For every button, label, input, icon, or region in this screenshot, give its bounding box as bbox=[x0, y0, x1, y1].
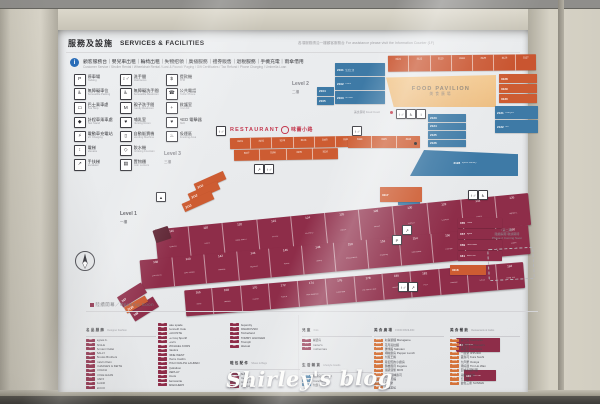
shop-number: GAP Outlet bbox=[172, 270, 206, 286]
shop-block: 2103NITORI bbox=[335, 91, 385, 104]
sign-title-en: SERVICES & FACILITIES bbox=[120, 40, 205, 47]
opening-soon-note: 陸續開幕／Opening Soon bbox=[90, 302, 154, 308]
shop-number: 3125 bbox=[472, 55, 493, 71]
legend-item: $提款機ATM bbox=[166, 74, 212, 84]
legend-label: 提款機ATM bbox=[180, 74, 193, 84]
level-1-label: Level 1一樓 bbox=[120, 202, 137, 225]
level-3-label: Level 3三樓 bbox=[164, 142, 181, 165]
bus-stop-icon: ▭ bbox=[74, 102, 86, 114]
legend-label: 置物櫃Coin Lockers bbox=[134, 159, 150, 169]
legend-label-en: Parking bbox=[88, 79, 101, 82]
legend-label-en: Bus Stop bbox=[88, 107, 109, 110]
shop-number: ASICS bbox=[269, 295, 298, 309]
directory-group-header: 兒童Kids bbox=[302, 318, 372, 338]
photo-of-mall-directory-sign: 服務及設施 SERVICES & FACILITIES 各項服務請洽一樓顧客服務… bbox=[0, 0, 600, 404]
shop-number: 3127 bbox=[515, 54, 536, 70]
restaurant-strip-label: RESTAURANT 味蕾小路 bbox=[230, 126, 313, 134]
legend-col-2: ♀♂洗手間Restrooms♿無障礙洗手間Accessible Restroom… bbox=[120, 74, 166, 173]
shop-number: LACOSTE bbox=[141, 273, 174, 289]
family-restroom-icon: M bbox=[120, 102, 132, 114]
food-pavilion-area: FOOD PAVILION 美食廣場 bbox=[386, 75, 496, 107]
shop-number: 3123 bbox=[429, 55, 450, 71]
shop-number: New Balance bbox=[298, 293, 327, 307]
shop-block: 2121UNIQLO bbox=[495, 106, 538, 119]
escalator-icon: ↗ bbox=[408, 282, 418, 292]
shop-block: 2123 bbox=[428, 114, 466, 122]
directory-group-header: 美食廣場FOOD PAVILION bbox=[374, 318, 444, 338]
legend-label-en: Restrooms bbox=[134, 79, 147, 82]
header-divider bbox=[66, 52, 520, 53]
legend-item: ⚡電動車充電站EV Charging bbox=[74, 131, 120, 141]
level2-left-stack: 2101生活工場2102HOLA2103NITORI bbox=[335, 63, 385, 105]
shop-block: 155TUMI bbox=[458, 218, 502, 228]
frame-shadow bbox=[0, 396, 600, 404]
shop-number: 3101 bbox=[230, 138, 250, 149]
opening-soon-text: 陸續開幕／Opening Soon bbox=[96, 302, 155, 308]
shop-number: 3107 bbox=[234, 149, 259, 160]
legend-label-en: Public Phone bbox=[180, 93, 197, 96]
legend-label-en: Accessible Restroom bbox=[134, 93, 159, 96]
legend-label-en: Taxi Stand bbox=[88, 122, 113, 125]
accessible-icon: ♿ bbox=[478, 190, 488, 200]
level3-orange-annex: 3118 bbox=[450, 265, 486, 275]
shop-number: PUMA bbox=[241, 298, 270, 312]
legend-item: ♥哺乳室Nursing Room bbox=[120, 117, 166, 127]
shop-number: 3103 bbox=[271, 137, 292, 148]
info-icon: i bbox=[70, 58, 79, 67]
legend-label: 公共電話Public Phone bbox=[180, 88, 197, 98]
level3-shop-bar: 3121312231233124312531263127 bbox=[388, 54, 536, 72]
level3-right-block: 3117 bbox=[380, 187, 422, 202]
legend-label: 無障礙車位Accessible Parking bbox=[88, 88, 111, 98]
restroom-icon: ♀♂ bbox=[398, 282, 408, 292]
frame-groove bbox=[558, 0, 564, 404]
level3-right-row: 311431153116 bbox=[348, 136, 420, 148]
level2-right-blocks: 2121UNIQLO2122GU bbox=[495, 106, 538, 134]
shop-number: Roots bbox=[270, 262, 304, 278]
shop-number: 3108 bbox=[259, 149, 285, 160]
escalator-icon: ↗ bbox=[254, 164, 264, 174]
legend-item: ▯自動販賣機Vending Machine bbox=[120, 131, 166, 141]
sign-title-note: 各項服務請洽一樓顧客服務台 For assistance please visi… bbox=[298, 41, 518, 46]
directory-entry: 147Wacoal bbox=[230, 344, 300, 348]
legend-item: ◆計程車乘車處Taxi Stand bbox=[74, 117, 120, 127]
legend-label: 停車場Parking bbox=[88, 74, 101, 84]
level3-right-stack: 312831293130 bbox=[499, 74, 537, 104]
opening-soon-bullet bbox=[90, 303, 94, 307]
taxi-stand-icon: ◆ bbox=[74, 117, 86, 129]
legend-item: ♀♂洗手間Restrooms bbox=[120, 74, 166, 84]
legend-item: ▤置物櫃Coin Lockers bbox=[120, 159, 166, 169]
shop-block: 3129 bbox=[499, 84, 537, 93]
elevator-icon: ↕ bbox=[416, 109, 426, 119]
shop-number: 3114 bbox=[348, 136, 371, 148]
coin-lockers-icon: ▤ bbox=[120, 159, 132, 171]
food-pavilion-label-zh: 美食廣場 bbox=[429, 92, 452, 97]
escalator-icon: ↗ bbox=[402, 225, 412, 235]
shop-block: 2104 bbox=[317, 87, 334, 96]
level2-list-stack: 2123212421252126 bbox=[428, 114, 466, 148]
legend-label-en: Family Restroom bbox=[134, 107, 155, 110]
legend-label-en: Drinking Fountain bbox=[134, 150, 155, 153]
directory-column: 121kate spade122Kenneth Cole123LACOSTE12… bbox=[158, 315, 228, 387]
legend-col-3: $提款機ATM☎公共電話Public Phone+救護室First Aid♥AE… bbox=[166, 74, 212, 145]
shop-number: REPLAY bbox=[237, 264, 271, 280]
shop-number: Sisley bbox=[302, 259, 336, 275]
smoking-area-icon: ♨ bbox=[166, 131, 178, 143]
legend-label: 親子洗手間Family Restroom bbox=[134, 102, 155, 112]
shop-number: Samsonite bbox=[400, 250, 434, 266]
legend-label: 電動車充電站EV Charging bbox=[88, 131, 113, 141]
phase2-line: Phase 2 Coming Soon bbox=[478, 236, 536, 240]
restrooms-icon: ♀♂ bbox=[120, 74, 132, 86]
shop-number: 3124 bbox=[451, 55, 472, 71]
legend-label-zh: AED 電擊器 bbox=[180, 117, 202, 122]
wall-strip bbox=[0, 0, 600, 9]
restroom-icon: ♀♂ bbox=[216, 126, 226, 136]
level-2-label: Level 2二樓 bbox=[292, 72, 309, 95]
legend-label-en: ATM bbox=[180, 79, 193, 82]
directory-entry: 115ECCO bbox=[86, 385, 156, 389]
directory-column: 名品服飾Designer Fashion101agnès b.102AIGLE1… bbox=[86, 315, 156, 389]
shop-block: 2125 bbox=[428, 131, 466, 139]
shop-number: 3105 bbox=[314, 136, 335, 147]
legend-item: ♥AED 電擊器AED bbox=[166, 117, 212, 127]
sign-title-zh: 服務及設施 bbox=[68, 38, 113, 49]
directory-sign: 服務及設施 SERVICES & FACILITIES 各項服務請洽一樓顧客服務… bbox=[58, 30, 528, 392]
phase2-zone-outline bbox=[487, 247, 535, 281]
legend-label-en: Elevator bbox=[88, 150, 98, 153]
shop-block: 3128 bbox=[499, 74, 537, 83]
legend-label-zh: 計程車乘車處 bbox=[88, 117, 113, 122]
legend-label: 計程車乘車處Taxi Stand bbox=[88, 117, 113, 127]
shop-block: 2105 bbox=[317, 97, 334, 106]
you-are-here-dot bbox=[390, 111, 393, 114]
nursing-room-icon: ♥ bbox=[120, 117, 132, 129]
legend-item: ♿無障礙洗手間Accessible Restroom bbox=[120, 88, 166, 98]
legend-label: 巴士乘車處Bus Stop bbox=[88, 102, 109, 112]
legend-label: 洗手間Restrooms bbox=[134, 74, 147, 84]
shop-number: 3121 bbox=[388, 56, 408, 72]
accessible-icon: ♿ bbox=[406, 109, 416, 119]
legend-item: ↗手扶梯Escalator bbox=[74, 159, 120, 169]
legend-col-1: P停車場Parking♿無障礙車位Accessible Parking▭巴士乘車… bbox=[74, 74, 120, 173]
legend-label-en: Escalator bbox=[88, 164, 101, 167]
first-aid-icon: + bbox=[166, 102, 178, 114]
elevator-icon: ↕ bbox=[74, 145, 86, 157]
legend-item: P停車場Parking bbox=[74, 74, 120, 84]
legend-label-en: Accessible Parking bbox=[88, 93, 111, 96]
shop-number: Reebok bbox=[439, 281, 468, 295]
shop-block: 3130 bbox=[499, 94, 537, 103]
directory-column: 美食餐飲Restaurants & Cafés3101星巴克 Starbucks… bbox=[450, 315, 520, 385]
legend-label-en: First Aid bbox=[180, 107, 193, 110]
drinking-fountain-icon: ◇ bbox=[120, 145, 132, 157]
restaurant-label-en: RESTAURANT bbox=[230, 127, 279, 133]
parking-icon: P bbox=[74, 74, 86, 86]
legend-item: ☎公共電話Public Phone bbox=[166, 88, 212, 98]
directory-entry: 171mothercare bbox=[302, 347, 372, 351]
legend-label-en: Nursing Room bbox=[134, 122, 151, 125]
directory-entry: 140SKECHERS bbox=[158, 383, 228, 387]
ev-charging-icon: ⚡ bbox=[74, 131, 86, 143]
atm-icon: $ bbox=[166, 74, 178, 86]
shop-number: 3122 bbox=[408, 55, 429, 71]
compass-icon bbox=[74, 250, 96, 277]
legend-label: 吸煙區Smoking Area bbox=[180, 131, 197, 141]
shop-block: 2124 bbox=[428, 123, 466, 131]
legend-label: 電梯Elevator bbox=[88, 145, 98, 155]
vending-machine-icon: ▯ bbox=[120, 131, 132, 143]
directory-group-header: 名品服飾Designer Fashion bbox=[86, 318, 156, 338]
legend-item: +救護室First Aid bbox=[166, 102, 212, 112]
shop-number: 3102 bbox=[250, 137, 271, 148]
legend-label: 自動販賣機Vending Machine bbox=[134, 131, 155, 141]
restaurant-logo-icon bbox=[281, 126, 289, 134]
directory-entry: 3111金色三麥 SUNMAI bbox=[450, 381, 520, 385]
legend-label: 無障礙洗手間Accessible Restroom bbox=[134, 88, 159, 98]
phase2-note: （第二期）陸續開幕 敬請期待Phase 2 Coming Soon bbox=[478, 228, 536, 240]
shop-block: 2122GU bbox=[495, 120, 538, 133]
legend-item: ♨吸煙區Smoking Area bbox=[166, 131, 212, 141]
marker-dot bbox=[414, 142, 417, 145]
shop-number: 3126 bbox=[493, 54, 514, 70]
shop-number: 3110 bbox=[312, 148, 338, 159]
shop-number: 3104 bbox=[292, 137, 313, 148]
parking-icon: P bbox=[392, 235, 402, 245]
level2-big-block: 2128Sports Factory bbox=[410, 150, 518, 176]
sign-frame-left bbox=[0, 9, 58, 392]
legend-label-en: AED bbox=[180, 122, 202, 125]
legend-item: M親子洗手間Family Restroom bbox=[120, 102, 166, 112]
sign-frame-top bbox=[0, 9, 600, 32]
legend-item: ◇飲水機Drinking Fountain bbox=[120, 145, 166, 155]
shop-number: 3115 bbox=[371, 136, 395, 148]
restroom-icon: ♀♂ bbox=[468, 190, 478, 200]
shop-block: 2102HOLA bbox=[335, 77, 385, 90]
shop-number: Nautica bbox=[205, 267, 239, 283]
directory-divider bbox=[86, 311, 538, 312]
blog-watermark: Shirley's blog bbox=[226, 365, 393, 392]
accessible-parking-icon: ♿ bbox=[74, 88, 86, 100]
restroom-icon: ♀♂ bbox=[352, 126, 362, 136]
shop-block: 2101生活工場 bbox=[335, 63, 385, 76]
shop-block: 2126 bbox=[428, 140, 466, 148]
legend-label-en: Smoking Area bbox=[180, 136, 197, 139]
shop-number: Columbia bbox=[326, 291, 355, 305]
level3-row-bottom: 3107310831093110 bbox=[234, 148, 338, 161]
restroom-icon: ♀♂ bbox=[396, 109, 406, 119]
legend-item: ▭巴士乘車處Bus Stop bbox=[74, 102, 120, 112]
shop-number: SKECHERS bbox=[335, 256, 369, 272]
restaurant-label-zh: 味蕾小路 bbox=[291, 126, 313, 133]
shop-number: Superdry bbox=[367, 253, 401, 269]
food-court-note: 美食廣場 Food Court bbox=[354, 110, 380, 114]
legend-item: ↕電梯Elevator bbox=[74, 145, 120, 155]
landmark-icon: ▲ bbox=[156, 192, 166, 202]
legend-label: 飲水機Drinking Fountain bbox=[134, 145, 155, 155]
public-phone-icon: ☎ bbox=[166, 88, 178, 100]
legend-label-en: EV Charging bbox=[88, 136, 113, 139]
aed-icon: ♥ bbox=[166, 117, 178, 129]
directory-group-header: 美食餐飲Restaurants & Cafés bbox=[450, 318, 520, 338]
level2-left-small-stack: 21042105 bbox=[317, 87, 334, 106]
legend-label: 救護室First Aid bbox=[180, 102, 193, 112]
legend-label: 哺乳室Nursing Room bbox=[134, 117, 151, 127]
escalator-icon: ↗ bbox=[74, 159, 86, 171]
restroom-icon: ♀♂ bbox=[264, 164, 274, 174]
legend-label-en: Vending Machine bbox=[134, 136, 155, 139]
shop-number: The North Face bbox=[354, 288, 383, 302]
legend-item: ♿無障礙車位Accessible Parking bbox=[74, 88, 120, 98]
legend-label-en: Coin Lockers bbox=[134, 164, 150, 167]
accessible-restroom-icon: ♿ bbox=[120, 88, 132, 100]
shop-number: 3109 bbox=[285, 149, 311, 160]
sign-frame-right bbox=[528, 9, 600, 392]
legend-label: 手扶梯Escalator bbox=[88, 159, 101, 169]
legend-label: AED 電擊器AED bbox=[180, 117, 202, 127]
